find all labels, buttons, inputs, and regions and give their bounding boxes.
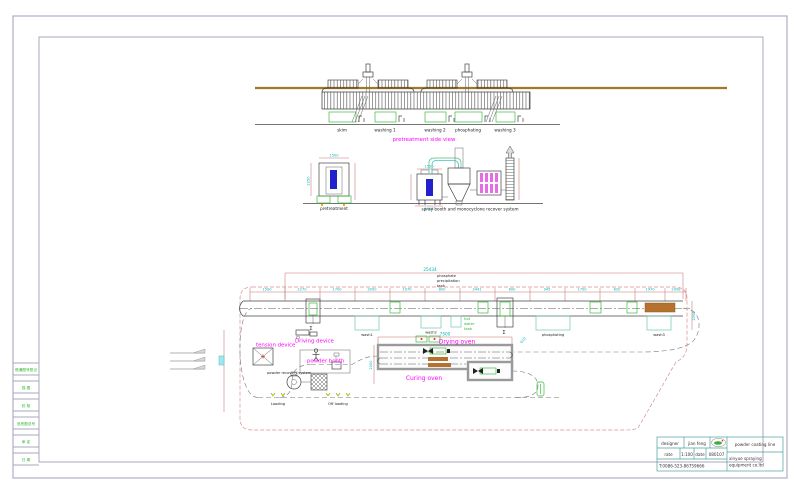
plan-tank-wash3	[647, 316, 671, 330]
phosphate-tank-note: tank	[437, 284, 446, 288]
tank-label-washing1: washing 1	[374, 128, 396, 133]
duct-pipe	[432, 161, 459, 175]
entry-marker	[219, 356, 224, 365]
dim-text: 1970	[402, 288, 412, 292]
tank-phosphating	[455, 112, 482, 122]
company-name-line1: xinyue spraying	[729, 456, 762, 461]
designer-value: jian feng	[687, 441, 706, 446]
driving-device-label: Driving device	[295, 339, 334, 345]
hot-water-note: water	[464, 322, 475, 326]
designer-label: designer	[661, 441, 679, 446]
workpiece	[330, 170, 337, 189]
tank-label-washing3: washing 3	[494, 128, 516, 133]
tank-washing3	[496, 112, 515, 122]
faucet-icon	[518, 116, 523, 122]
strip-cell-1: 借通图号登记	[15, 367, 37, 372]
oven-dim: 7500	[440, 332, 451, 337]
hot-water-note: hot	[464, 317, 471, 321]
dim-text: 1500	[329, 154, 339, 158]
cad-drawing-canvas: 借通图号登记 描 图 校 核 旧底图总号 审 定 日 期	[0, 0, 800, 493]
cyclone	[448, 148, 470, 205]
date-value: 080107	[709, 452, 725, 457]
spray-booth-caption: spray booth and monocyclone recover syst…	[421, 207, 518, 212]
title-block: designer jian feng rate 1:100 date 08010…	[657, 437, 783, 471]
conveyor-band	[322, 92, 530, 109]
entry-arrows	[170, 349, 205, 369]
recovery-sieve	[311, 374, 327, 390]
dim-text: 3000	[367, 288, 377, 292]
recovery-label: powder recovery system	[267, 371, 312, 375]
faucet-icon	[449, 116, 454, 122]
brown-section	[645, 303, 675, 312]
project-title: powder coating line	[735, 442, 776, 447]
dim-text: 1500	[262, 288, 272, 292]
wash1-label: wash1	[361, 333, 373, 337]
sigma-symbol: Σ	[502, 330, 505, 336]
hot-water-note: tank	[464, 327, 473, 331]
phosphate-tank-note: phosphate	[437, 274, 457, 278]
station-a: Σ	[306, 299, 320, 332]
station-b: Σ	[497, 298, 513, 336]
dim-text: 2270	[297, 288, 307, 292]
date-label: date	[695, 452, 705, 457]
pretreatment-side-view: skim washing 1 washing 2 phosphating was…	[255, 64, 727, 143]
dim-text: 1970	[645, 288, 655, 292]
up-arrow-icon	[506, 146, 514, 158]
heater-bar	[428, 363, 451, 367]
phone-number: T:0086-523-86759666	[658, 464, 705, 469]
conveyor-top-run	[240, 301, 691, 316]
pretreatment-caption: pretreatment	[320, 206, 348, 211]
tension-device	[253, 348, 273, 365]
tank-label-phosphating: phosphating	[455, 128, 481, 133]
dim-text: 1700	[332, 288, 342, 292]
plan-tank-hotwater	[451, 316, 461, 327]
exhaust-chimney	[506, 146, 514, 200]
overall-dim: 25434	[423, 267, 437, 272]
margin-strip: 借通图号登记 描 图 校 核 旧底图总号 审 定 日 期	[13, 363, 39, 465]
wash3-label: wash3	[653, 333, 665, 337]
dim-text: 945	[544, 288, 551, 292]
offloading-label: Off loading	[328, 402, 348, 406]
powder-booth-label: powder booth	[307, 359, 344, 365]
ovens: 7500 2000	[369, 332, 544, 397]
dim-text: 3441	[472, 288, 481, 292]
dim-text: 1700	[577, 288, 587, 292]
heater-bar	[428, 357, 448, 361]
recovery-cyclone	[287, 375, 301, 389]
tank-label-skim: skim	[337, 128, 347, 133]
loading-label: Loading	[271, 402, 285, 406]
loading-marks	[271, 393, 350, 396]
tension-device-label: tension device	[256, 343, 296, 349]
dim-text: 2250	[307, 176, 311, 186]
curing-oven-label: Curing oven	[406, 375, 443, 382]
tank-label-washing2: washing 2	[424, 128, 446, 133]
strip-cell-3: 校 核	[22, 403, 31, 408]
rate-label: rate	[664, 452, 673, 457]
dim-text: 620	[614, 288, 622, 292]
plan-tank-wash2	[421, 316, 441, 328]
dim-text: 2008	[671, 288, 681, 292]
phosphating-label: phosphating	[542, 333, 564, 337]
tank-washing2	[425, 112, 446, 122]
company-name-line2: equipment co.ltd	[729, 463, 764, 468]
side-view-caption: pretreatment side view	[393, 137, 456, 143]
plan-tank-phosphating	[536, 316, 570, 330]
strip-cell-2: 描 图	[22, 385, 31, 390]
company-logo	[712, 438, 726, 446]
sigma-symbol: Σ	[309, 326, 312, 332]
dim-text: 600	[509, 288, 517, 292]
dim-text: 2000	[369, 360, 373, 370]
strip-cell-5: 审 定	[22, 439, 31, 444]
tank-washing1	[375, 112, 396, 122]
tank-skim	[329, 112, 356, 122]
wash2-label: wash2	[425, 331, 437, 335]
strip-cell-6: 日 期	[22, 457, 31, 462]
rate-value: 1:100	[681, 452, 693, 457]
plan-tank-wash1	[355, 316, 379, 330]
strip-cell-4: 旧底图总号	[17, 421, 36, 426]
after-filter	[477, 171, 501, 195]
phosphate-tank-note: precipitation	[437, 279, 460, 283]
faucet-icon	[399, 116, 404, 122]
drying-oven-label: Drying oven	[439, 339, 476, 346]
elevation-views: 2250 1500 pretreatment 1500 1008	[303, 146, 543, 212]
dim-text: 800	[439, 288, 447, 292]
plan-view: 25434 1500 2270 1700 3000 1970 800 3441 …	[170, 267, 699, 430]
workpiece	[426, 179, 433, 196]
pretreatment-elevation: 2250 1500 pretreatment	[307, 154, 356, 212]
spray-booth-system: 1500 1008	[411, 146, 519, 212]
dim-text: 610	[520, 336, 528, 344]
